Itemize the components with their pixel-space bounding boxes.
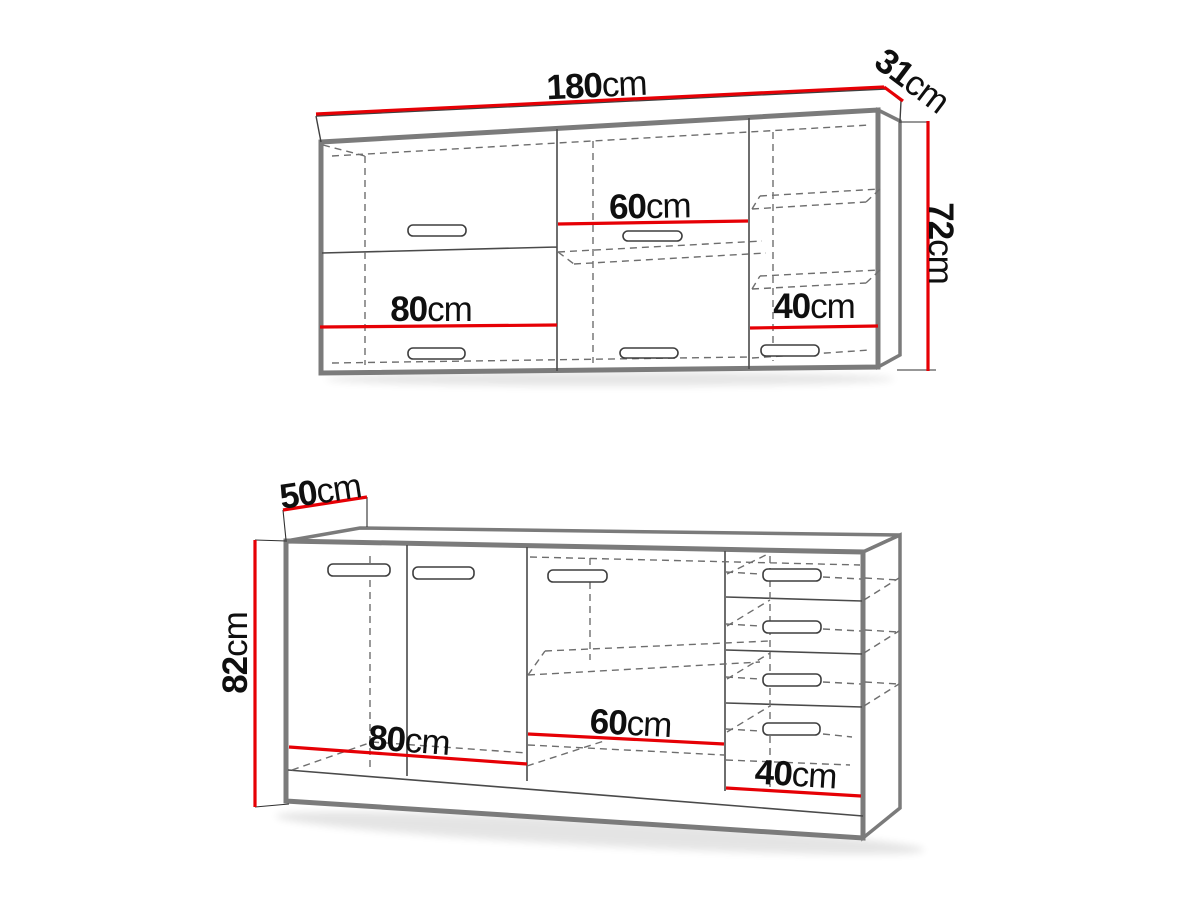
cabinet-dimension-diagram: 180cm 31cm 72cm 60cm 80cm 40cm 50cm 82cm… (0, 0, 1200, 899)
dim-label-base-section-right: 40cm (754, 753, 838, 797)
dim-label-wall-height: 72cm (921, 202, 960, 284)
dim-label-base-section-left: 80cm (367, 718, 451, 763)
dim-label-base-depth-value: 50 (277, 473, 320, 517)
dim-label-base-height-value: 82 (216, 656, 255, 693)
dim-label-base-section-left-value: 80 (367, 718, 407, 760)
dim-label-wall-section-middle-value: 60 (609, 187, 647, 227)
dim-label-wall-depth: 31cm (868, 41, 957, 121)
dim-label-wall-section-right: 40cm (773, 287, 855, 326)
dim-label-wall-section-left-unit: cm (427, 290, 472, 329)
base-drawer-handle-3 (763, 674, 821, 686)
dim-label-base-depth-unit: cm (314, 466, 364, 511)
wall-cabinet: 180cm 31cm 72cm 60cm 80cm 40cm (316, 41, 960, 386)
dim-label-wall-width-value: 180 (546, 66, 604, 108)
base-door-handle-left-1 (328, 564, 390, 576)
dim-label-wall-section-middle: 60cm (609, 186, 691, 226)
dim-label-base-section-middle: 60cm (589, 702, 673, 745)
dim-label-wall-height-value: 72 (921, 202, 960, 239)
wall-door-handle-left-top (408, 225, 466, 236)
base-door-handle-middle (548, 570, 607, 582)
base-drawer-handle-2 (763, 621, 821, 633)
dim-label-wall-section-right-unit: cm (810, 287, 855, 326)
dim-label-wall-section-right-value: 40 (773, 287, 810, 326)
dim-label-wall-section-left: 80cm (390, 290, 472, 329)
wall-door-handle-left-bottom (408, 348, 465, 359)
diagram-svg: 180cm 31cm 72cm 60cm 80cm 40cm 50cm 82cm… (0, 0, 1200, 899)
dim-label-wall-section-middle-unit: cm (646, 186, 691, 226)
dim-label-wall-height-unit: cm (921, 239, 960, 284)
base-drawer-handle-4 (763, 723, 820, 735)
dim-label-base-depth: 50cm (277, 466, 363, 517)
wall-door-handle-right (761, 345, 819, 356)
base-drawer-handle-1 (763, 569, 821, 581)
dim-label-base-section-middle-value: 60 (589, 702, 628, 743)
dim-label-wall-width: 180cm (546, 64, 648, 108)
dim-label-wall-section-left-value: 80 (390, 290, 427, 329)
base-door-handle-left-2 (413, 567, 474, 579)
wall-door-handle-middle-bottom (620, 348, 678, 358)
dim-label-wall-width-unit: cm (601, 64, 647, 105)
wall-door-handle-middle-top (623, 231, 682, 241)
dim-line-wall-section-right (750, 326, 878, 328)
dim-label-base-section-right-value: 40 (754, 753, 794, 794)
dim-label-base-section-middle-unit: cm (626, 704, 673, 745)
dim-label-base-height: 82cm (216, 612, 255, 694)
wall-cabinet-front-face (321, 110, 878, 373)
wall-cabinet-side-face (878, 110, 900, 367)
dim-label-base-section-left-unit: cm (404, 721, 451, 763)
base-cabinet: 50cm 82cm 80cm 60cm 40cm (216, 466, 925, 863)
dim-label-base-section-right-unit: cm (791, 755, 838, 797)
dim-label-base-height-unit: cm (216, 612, 255, 657)
